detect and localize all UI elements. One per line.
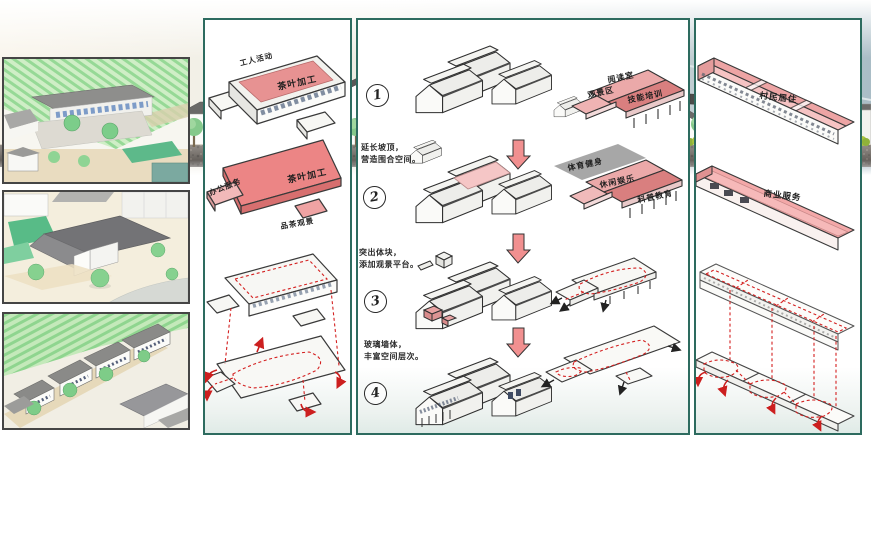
circulation-plan xyxy=(546,326,680,384)
commercial-service-bar xyxy=(696,166,854,250)
render-illustration-roofscape xyxy=(4,192,188,302)
step-2-number: 2 xyxy=(369,189,381,205)
massing-step-2 xyxy=(416,156,552,223)
step-4-number: 4 xyxy=(370,385,382,401)
step-note-1-line-2: 营造围合空间。 xyxy=(361,154,421,166)
panel-massing-evolution: 1 2 3 4 延长坡顶， 营造围合空间。 突出体块， 添加观景平台。 玻璃墙体… xyxy=(356,18,690,435)
render-illustration-street xyxy=(4,314,188,428)
render-thumbnail-3 xyxy=(2,312,190,430)
ground-plan-slabs xyxy=(696,352,854,431)
step-note-2: 突出体块， 添加观景平台。 xyxy=(359,247,419,271)
massing-evolution-drawing xyxy=(358,20,688,433)
down-arrow-icon xyxy=(507,140,530,357)
step-note-1-line-1: 延长坡顶， xyxy=(361,142,421,154)
massing-step-1 xyxy=(416,46,552,113)
render-thumbnail-1 xyxy=(2,57,190,184)
presentation-board: 工人活动 茶叶加工 办公服务 茶叶加工 品茶观景 xyxy=(0,0,871,543)
render-thumbnail-2 xyxy=(2,190,190,304)
render-illustration-courtyard xyxy=(4,59,188,182)
step-note-3-line-1: 玻璃墙体， xyxy=(364,339,424,351)
step-1-number: 1 xyxy=(372,87,384,103)
step-note-2-line-2: 添加观景平台。 xyxy=(359,259,419,271)
step-note-3-line-2: 丰富空间层次。 xyxy=(364,351,424,363)
exploded-circulation xyxy=(700,264,854,350)
step-note-1: 延长坡顶， 营造围合空间。 xyxy=(361,142,421,166)
program-bars-drawing xyxy=(696,20,860,433)
circulation-building xyxy=(556,258,656,306)
step-note-3: 玻璃墙体， 丰富空间层次。 xyxy=(364,339,424,363)
panel-program-bars: 村民居住 商业服务 xyxy=(694,18,862,435)
step-note-2-line-1: 突出体块， xyxy=(359,247,419,259)
panel-function-massing: 工人活动 茶叶加工 办公服务 茶叶加工 品茶观景 xyxy=(203,18,352,435)
step-3-number: 3 xyxy=(370,293,382,309)
